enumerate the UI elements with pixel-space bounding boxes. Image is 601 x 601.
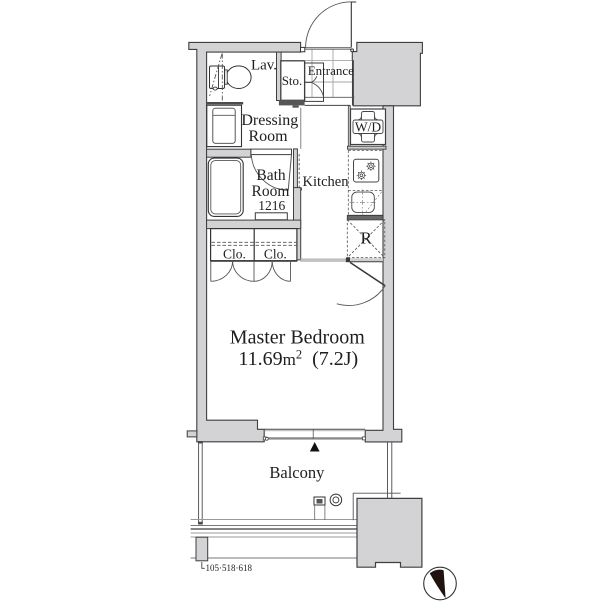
svg-text:Kitchen: Kitchen	[303, 174, 350, 190]
svg-text:R: R	[361, 229, 373, 248]
svg-text:Clo.: Clo.	[264, 246, 287, 261]
svg-text:105·518·618: 105·518·618	[206, 563, 253, 573]
svg-text:1216: 1216	[258, 198, 285, 213]
svg-text:W/D: W/D	[355, 120, 381, 135]
svg-text:Entrance: Entrance	[308, 63, 354, 78]
svg-text:Master Bedroom: Master Bedroom	[230, 327, 365, 349]
svg-text:Dressing: Dressing	[241, 112, 298, 129]
svg-text:Clo.: Clo.	[223, 246, 246, 261]
svg-text:Sto.: Sto.	[282, 73, 303, 88]
svg-text:Room: Room	[248, 128, 288, 145]
svg-text:11.69m2 (7.2J): 11.69m2 (7.2J)	[238, 347, 358, 370]
svg-text:Bath: Bath	[256, 167, 286, 184]
svg-text:Balcony: Balcony	[269, 463, 325, 482]
svg-text:Lav.: Lav.	[251, 58, 277, 74]
